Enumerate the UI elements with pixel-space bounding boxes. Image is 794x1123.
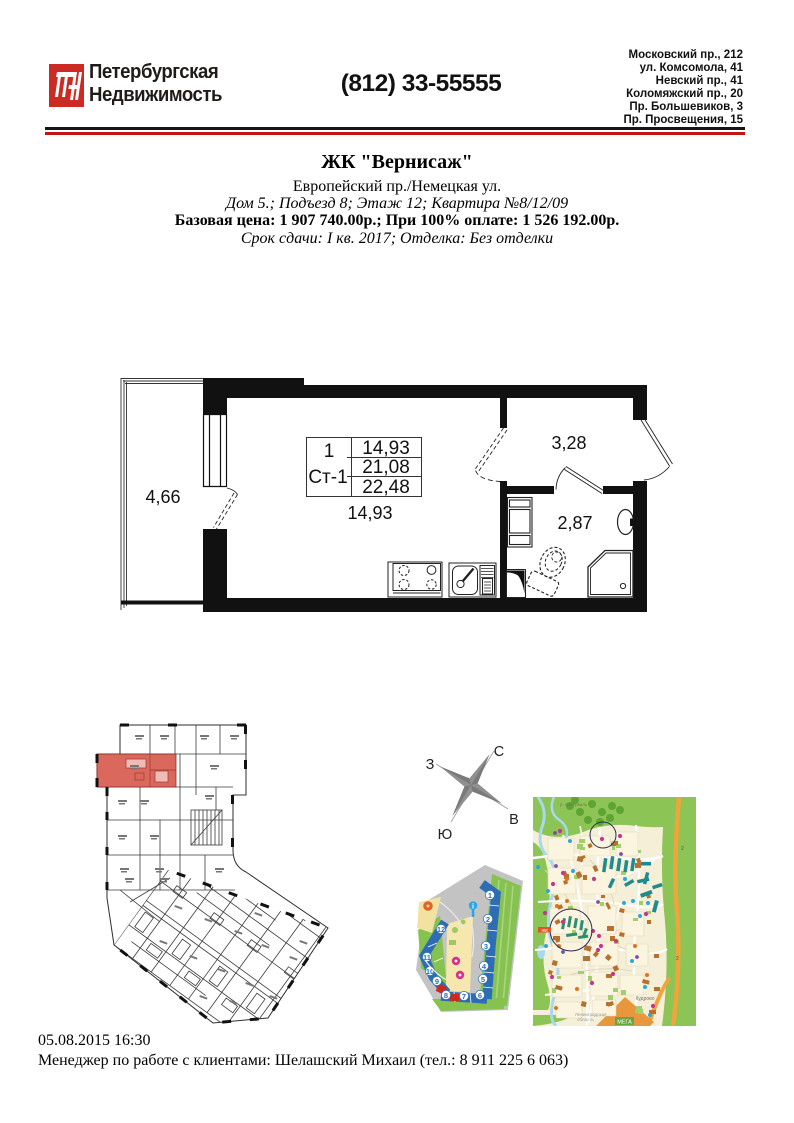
svg-text:С: С — [494, 744, 504, 760]
svg-text:Кудрово: Кудрово — [635, 996, 654, 1002]
svg-text:5: 5 — [481, 975, 485, 984]
svg-text:12: 12 — [437, 925, 445, 934]
svg-text:9: 9 — [435, 977, 439, 986]
svg-text:10: 10 — [426, 967, 434, 976]
svg-text:4,66: 4,66 — [145, 487, 180, 507]
svg-text:3,28: 3,28 — [551, 433, 586, 453]
svg-text:р. Оккервиль: р. Оккервиль — [560, 802, 588, 807]
svg-text:область: область — [577, 1017, 594, 1022]
svg-text:22,48: 22,48 — [362, 477, 410, 498]
svg-text:МЕГА: МЕГА — [617, 1020, 632, 1026]
svg-text:i: i — [472, 904, 474, 911]
svg-text:3: 3 — [484, 942, 488, 951]
svg-text:В: В — [509, 812, 519, 828]
svg-text:Ст-1: Ст-1 — [308, 467, 347, 488]
svg-text:7: 7 — [462, 992, 466, 1001]
svg-text:11: 11 — [423, 953, 431, 962]
svg-text:2: 2 — [486, 915, 490, 924]
svg-text:2: 2 — [681, 846, 684, 852]
svg-text:1: 1 — [488, 891, 492, 900]
svg-text:8: 8 — [444, 991, 448, 1000]
svg-text:6: 6 — [478, 991, 482, 1000]
svg-text:1: 1 — [324, 441, 335, 462]
svg-text:21,08: 21,08 — [362, 457, 410, 478]
svg-text:Ю: Ю — [438, 827, 453, 843]
svg-text:14,93: 14,93 — [347, 503, 392, 523]
svg-text:14,93: 14,93 — [362, 438, 410, 459]
svg-text:ЖК: ЖК — [541, 928, 548, 933]
svg-text:З: З — [426, 757, 435, 773]
svg-text:2: 2 — [676, 956, 679, 962]
svg-text:2,87: 2,87 — [557, 513, 592, 533]
